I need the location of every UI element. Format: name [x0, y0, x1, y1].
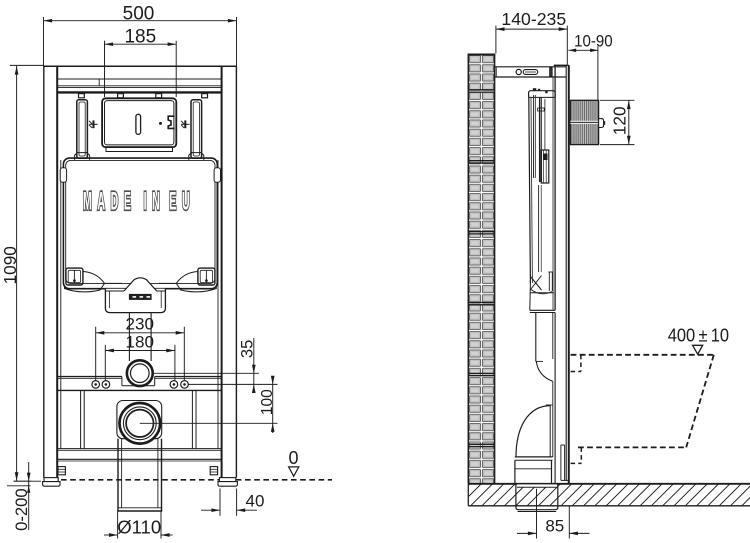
svg-text:IN: IN	[144, 188, 166, 215]
svg-text:230: 230	[126, 316, 155, 334]
svg-text:MADE: MADE	[83, 188, 137, 215]
svg-text:500: 500	[123, 4, 155, 25]
svg-text:400 ± 10: 400 ± 10	[668, 324, 729, 345]
svg-text:Ø110: Ø110	[117, 516, 161, 537]
svg-text:100: 100	[259, 389, 276, 415]
svg-text:1090: 1090	[0, 246, 20, 284]
svg-text:140-235: 140-235	[501, 9, 566, 29]
svg-text:10-90: 10-90	[574, 32, 613, 51]
svg-text:0-200: 0-200	[12, 488, 31, 531]
svg-text:EU: EU	[169, 188, 195, 215]
svg-text:120: 120	[610, 106, 630, 135]
svg-text:40: 40	[246, 491, 265, 510]
svg-text:35: 35	[238, 340, 256, 358]
svg-text:180: 180	[126, 334, 155, 352]
svg-text:0: 0	[288, 448, 298, 468]
svg-text:185: 185	[124, 26, 156, 47]
svg-text:85: 85	[545, 517, 564, 536]
